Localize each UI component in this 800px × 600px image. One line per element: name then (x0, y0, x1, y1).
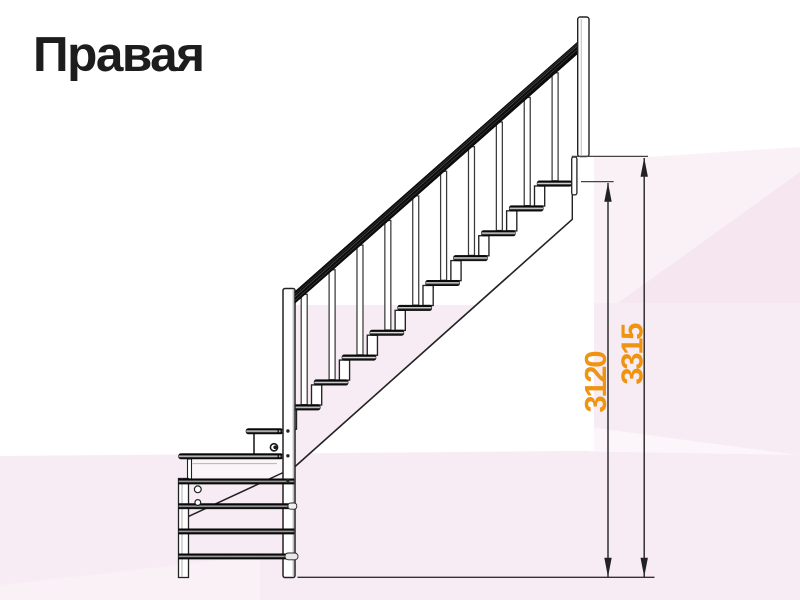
svg-text:3315: 3315 (615, 323, 650, 385)
svg-text:3120: 3120 (578, 352, 613, 413)
svg-text:Правая: Правая (33, 27, 204, 82)
